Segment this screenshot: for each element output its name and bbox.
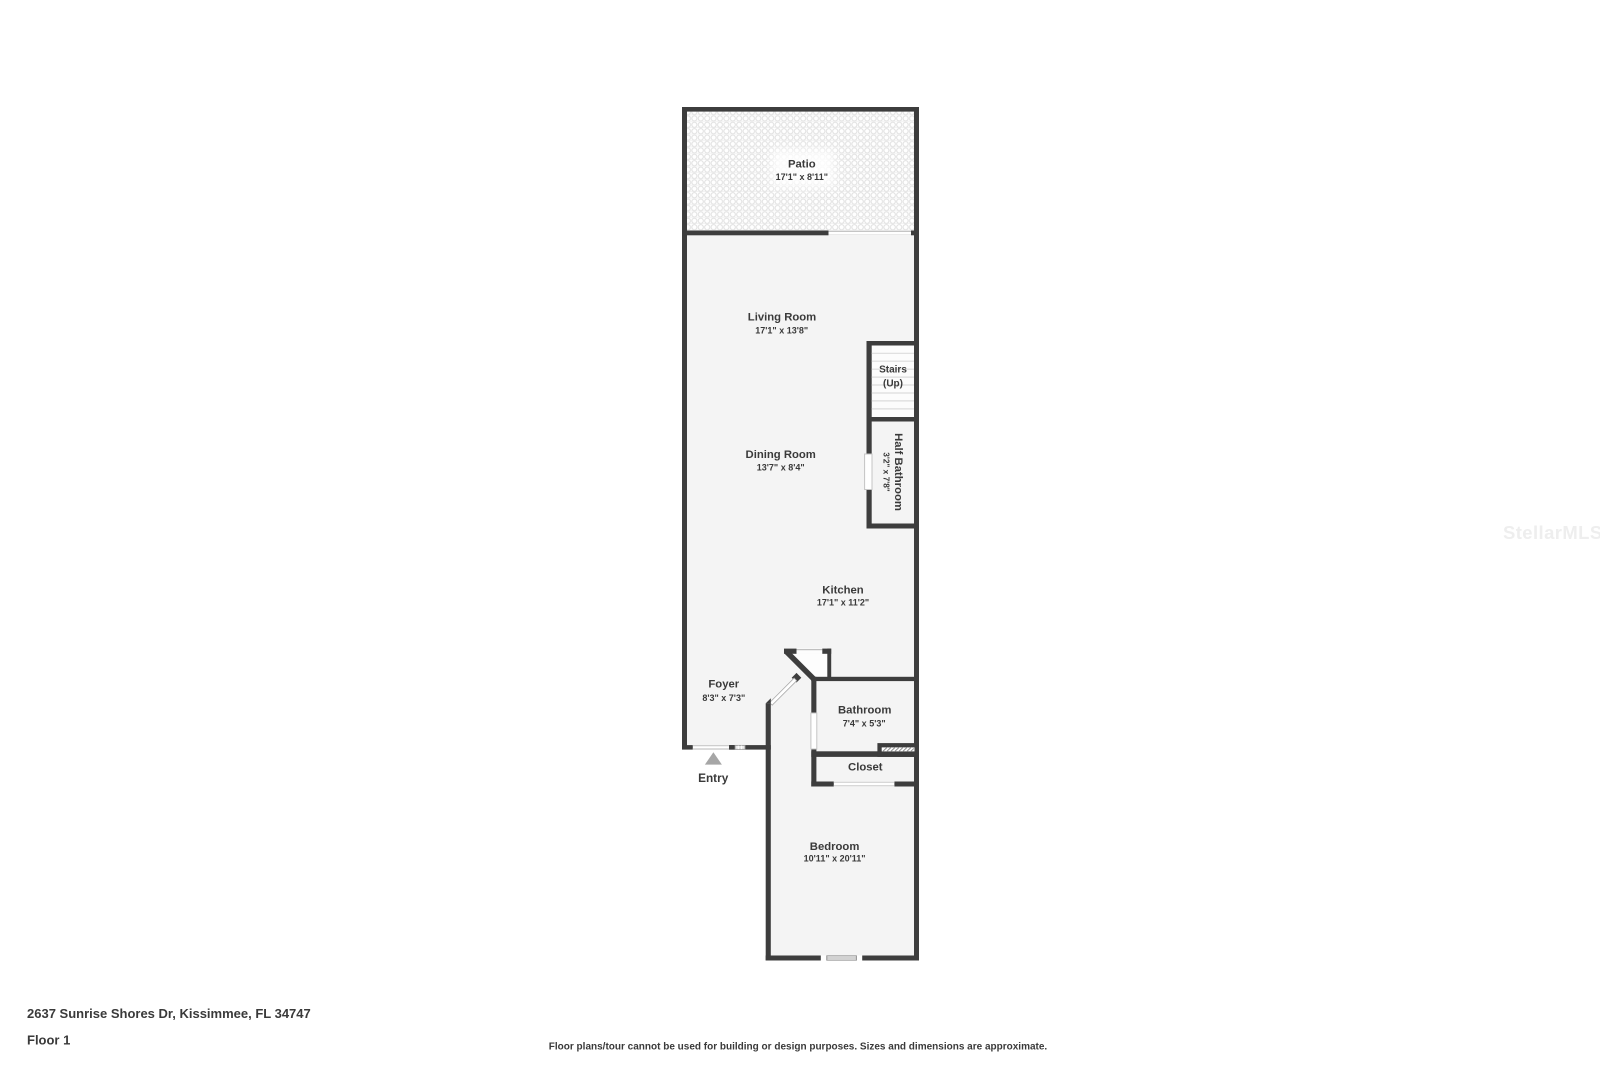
svg-text:StellarMLS: StellarMLS — [1503, 522, 1600, 543]
svg-text:(Up): (Up) — [883, 378, 903, 389]
svg-text:13'7" x 8'4": 13'7" x 8'4" — [757, 462, 805, 472]
svg-text:Half Bathroom: Half Bathroom — [892, 433, 904, 511]
svg-text:17'1" x 8'11": 17'1" x 8'11" — [776, 172, 828, 182]
svg-text:10'11" x 20'11": 10'11" x 20'11" — [804, 854, 866, 864]
svg-text:Living Room: Living Room — [748, 312, 816, 324]
svg-text:Foyer: Foyer — [708, 678, 739, 690]
svg-text:Closet: Closet — [848, 762, 883, 774]
svg-text:Entry: Entry — [698, 771, 729, 785]
svg-text:7'4" x 5'3": 7'4" x 5'3" — [843, 719, 886, 729]
svg-text:Patio: Patio — [788, 159, 816, 171]
svg-text:Kitchen: Kitchen — [822, 584, 864, 596]
svg-text:Bedroom: Bedroom — [810, 841, 860, 853]
svg-text:17'1" x 11'2": 17'1" x 11'2" — [817, 597, 869, 607]
svg-text:Floor plans/tour cannot be use: Floor plans/tour cannot be used for buil… — [549, 1041, 1048, 1052]
svg-text:Dining Room: Dining Room — [746, 449, 816, 461]
svg-text:8'3" x 7'3": 8'3" x 7'3" — [702, 693, 745, 703]
svg-text:17'1" x 13'8": 17'1" x 13'8" — [755, 326, 808, 336]
svg-text:2637 Sunrise Shores Dr, Kissim: 2637 Sunrise Shores Dr, Kissimmee, FL 34… — [27, 1006, 311, 1021]
svg-text:Stairs: Stairs — [879, 365, 907, 376]
svg-text:3'2" x 7'8": 3'2" x 7'8" — [881, 452, 891, 492]
svg-text:Floor 1: Floor 1 — [27, 1033, 70, 1048]
svg-text:Bathroom: Bathroom — [838, 704, 891, 716]
